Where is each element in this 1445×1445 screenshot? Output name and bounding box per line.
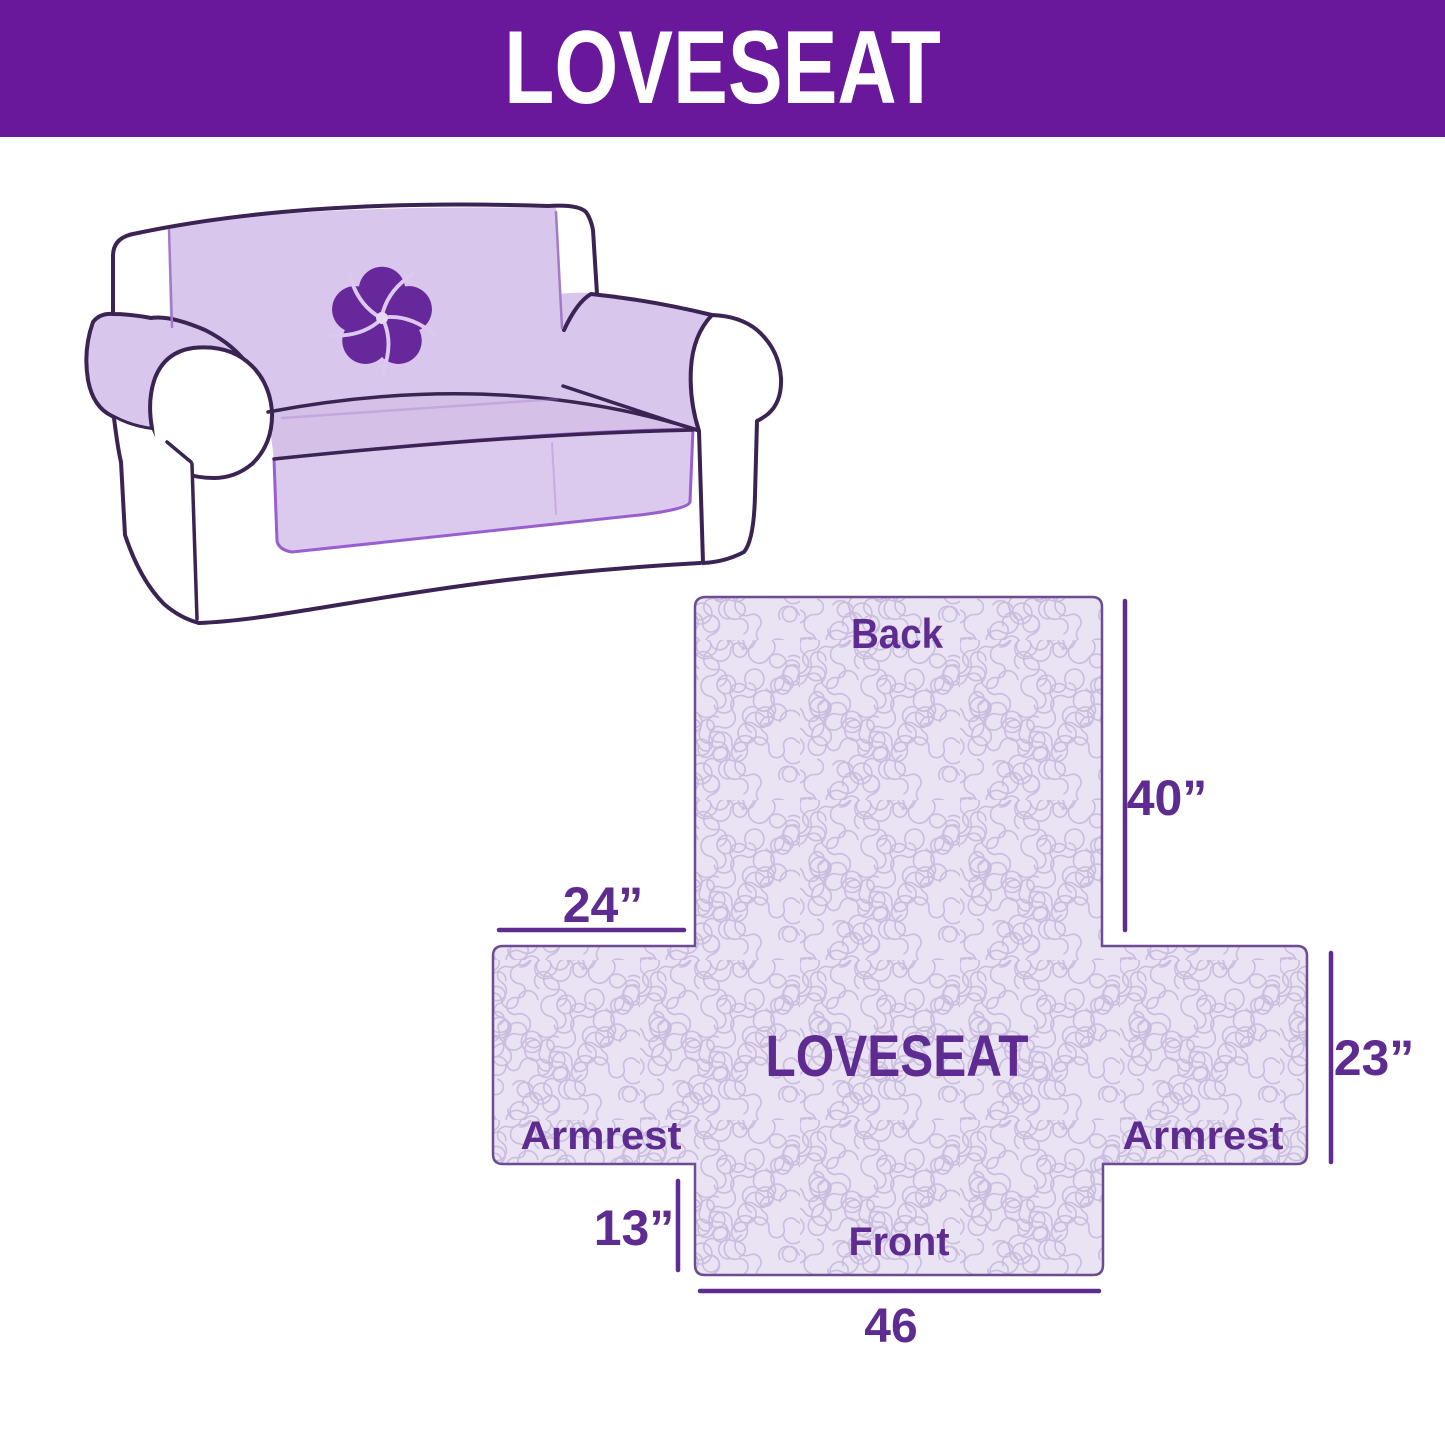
svg-text:LOVESEAT: LOVESEAT — [766, 1024, 1029, 1089]
svg-text:23”: 23” — [1334, 1030, 1415, 1086]
svg-text:Back: Back — [851, 610, 944, 657]
svg-text:Front: Front — [849, 1220, 950, 1264]
svg-text:24”: 24” — [563, 877, 644, 933]
svg-text:Armrest: Armrest — [521, 1114, 682, 1158]
svg-text:13”: 13” — [594, 1200, 675, 1256]
svg-text:40”: 40” — [1127, 770, 1208, 826]
svg-text:46: 46 — [864, 1300, 917, 1353]
svg-text:Armrest: Armrest — [1123, 1114, 1284, 1158]
